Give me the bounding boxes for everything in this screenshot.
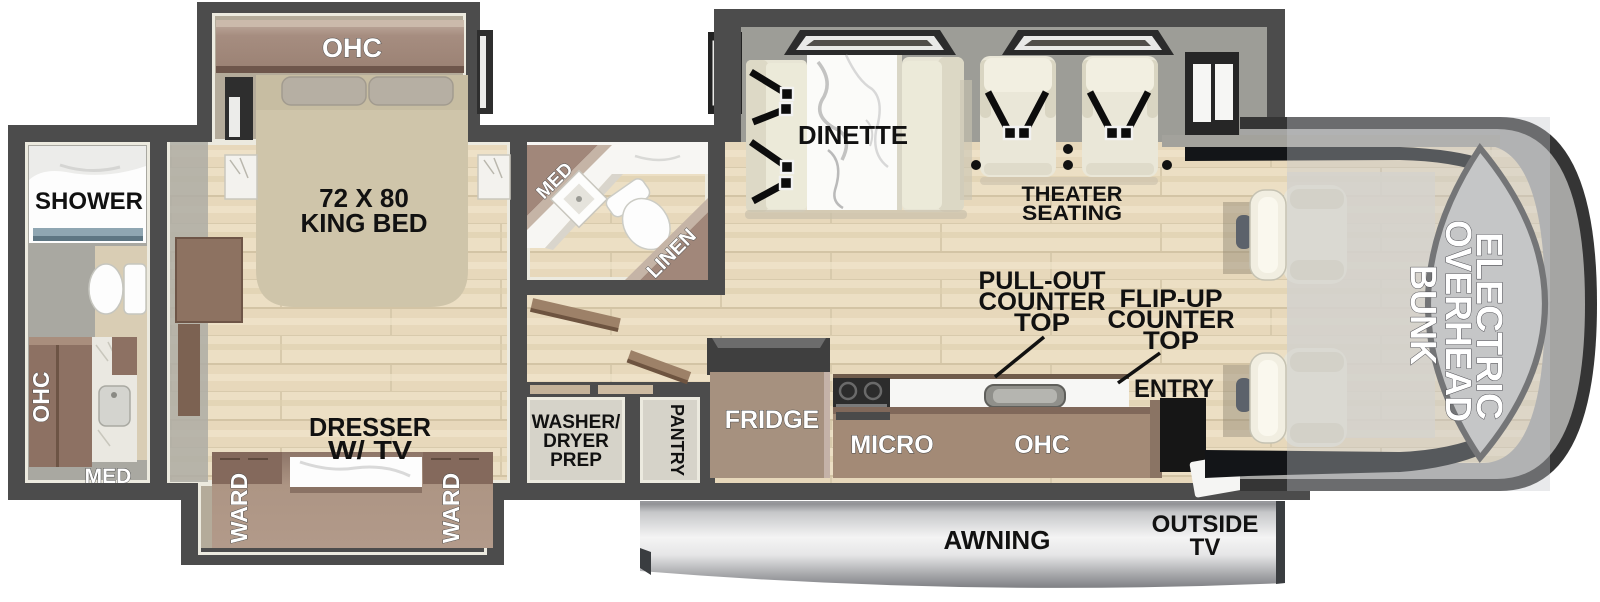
- svg-text:OHC: OHC: [28, 371, 54, 422]
- svg-text:DRYER: DRYER: [543, 431, 609, 452]
- svg-text:ENTRY: ENTRY: [1134, 375, 1214, 403]
- svg-text:OHC: OHC: [1014, 431, 1070, 459]
- svg-text:MED: MED: [85, 465, 132, 488]
- svg-text:OHC: OHC: [322, 33, 382, 63]
- svg-text:WARD: WARD: [226, 473, 252, 543]
- svg-text:PANTRY: PANTRY: [667, 404, 687, 476]
- svg-text:TV: TV: [1190, 534, 1221, 561]
- svg-text:KING BED: KING BED: [300, 208, 427, 238]
- svg-text:BUNK: BUNK: [1403, 265, 1444, 365]
- svg-text:SEATING: SEATING: [1022, 202, 1122, 225]
- svg-text:SHOWER: SHOWER: [35, 188, 143, 215]
- svg-text:WARD: WARD: [438, 473, 464, 543]
- svg-text:AWNING: AWNING: [944, 525, 1051, 555]
- svg-text:TOP: TOP: [1014, 309, 1070, 337]
- svg-text:MICRO: MICRO: [850, 431, 933, 459]
- svg-text:W/ TV: W/ TV: [328, 435, 413, 465]
- svg-text:WASHER/: WASHER/: [532, 412, 621, 433]
- svg-text:TOP: TOP: [1143, 327, 1199, 355]
- svg-text:PREP: PREP: [550, 450, 602, 471]
- svg-text:FRIDGE: FRIDGE: [725, 406, 819, 434]
- svg-text:DINETTE: DINETTE: [798, 120, 908, 150]
